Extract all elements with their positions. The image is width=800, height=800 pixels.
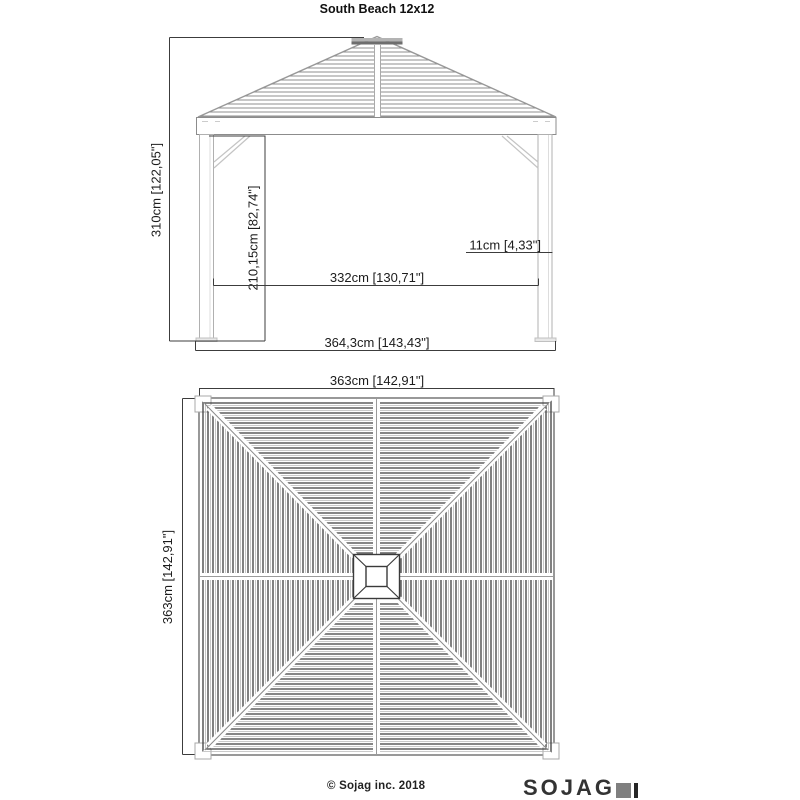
brace-left [214,136,245,162]
brace-right [502,136,538,168]
sojag-logo: SOJAG [523,777,615,799]
plan-dim-depth [183,399,199,755]
brace-right [507,136,538,162]
copyright-text: © Sojag inc. 2018 [327,780,425,792]
sojag-logo-square-mark [616,783,631,798]
plan-dim-width [199,389,555,399]
sojag-logo-bar-mark [634,783,639,798]
roof-vent-inner [366,567,387,587]
drawing-sheet: 310cm [122,05"] 210,15cm [82,74"] 11cm [… [0,0,800,800]
elevation-view: 310cm [122,05"] 210,15cm [82,74"] 11cm [… [149,37,557,351]
roof-cap-band [352,41,403,44]
dim-total-width-label: 364,3cm [143,43"] [324,335,429,350]
technical-drawing-page: South Beach 12x12 [0,0,800,800]
dim-post-width-label: 11cm [4,33"] [469,238,541,253]
brace-left [214,136,250,168]
plan-dim-width-label: 363cm [142,91"] [330,373,424,388]
post-left [200,135,214,341]
dim-clear-height-label: 210,15cm [82,74"] [246,185,261,290]
roof-plan-view: 363cm [142,91"] 363cm [142,91"] [160,373,559,759]
roof-center-seam [375,44,381,117]
base-plate-right [535,338,556,342]
roof-cap-top [352,38,403,41]
dim-total-height-label: 310cm [122,05"] [149,143,164,237]
sojag-logo-text: SOJAG [523,775,615,800]
dim-inner-width-label: 332cm [130,71"] [330,270,424,285]
header-beam [197,118,557,135]
plan-dim-depth-label: 363cm [142,91"] [160,530,175,624]
